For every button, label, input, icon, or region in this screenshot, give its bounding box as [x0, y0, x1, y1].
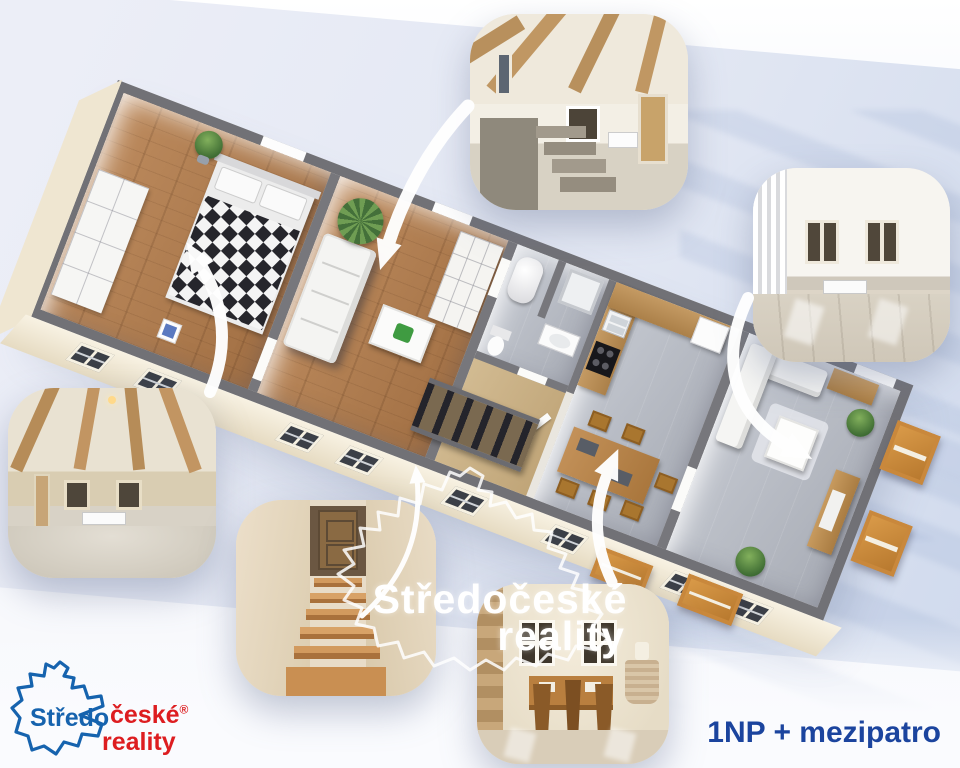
- concrete-floor: [8, 526, 216, 578]
- table-lamp: [635, 642, 649, 660]
- placemat: [609, 468, 632, 487]
- light-bulb: [108, 396, 116, 404]
- window: [865, 220, 899, 264]
- stair-step: [294, 646, 380, 659]
- photo-empty-room: [753, 168, 950, 362]
- facade-window: [66, 342, 115, 372]
- floor-caption: 1NP + mezipatro: [695, 716, 941, 750]
- stair-step: [552, 159, 606, 173]
- small-window: [496, 52, 512, 96]
- window: [116, 480, 142, 510]
- window: [64, 480, 90, 510]
- photo-mezzanine-room: [470, 14, 688, 210]
- stair-step: [300, 627, 374, 639]
- stair-base: [286, 667, 386, 696]
- watermark-line2: reality: [430, 613, 625, 660]
- logo-word-ceske: české®: [110, 701, 188, 730]
- tile-floor: [753, 294, 950, 362]
- door: [638, 94, 668, 164]
- stair-step: [560, 177, 616, 192]
- logo-word-ceske-text: české: [110, 701, 180, 729]
- curtain: [753, 168, 787, 308]
- facade-window: [440, 486, 489, 516]
- placemat: [576, 438, 599, 457]
- stair-step: [544, 142, 596, 155]
- facade-window: [334, 445, 383, 475]
- radiator: [82, 512, 126, 525]
- facade-window: [540, 524, 589, 554]
- table-plant: [392, 322, 415, 343]
- cloth-side-table: [625, 660, 659, 704]
- photo-beamed-room: [8, 388, 216, 578]
- logo-word-stredo: Středo: [30, 704, 109, 733]
- door: [318, 510, 358, 570]
- radiator: [823, 280, 867, 294]
- window: [805, 220, 839, 264]
- radiator: [608, 132, 638, 148]
- small-side-table: [157, 318, 183, 344]
- stair-step: [536, 126, 586, 138]
- stair-parapet: [480, 118, 538, 210]
- registered-mark: ®: [180, 703, 189, 717]
- logo-word-reality: reality: [102, 728, 176, 757]
- facade-window: [275, 423, 324, 453]
- door-frame: [34, 474, 50, 528]
